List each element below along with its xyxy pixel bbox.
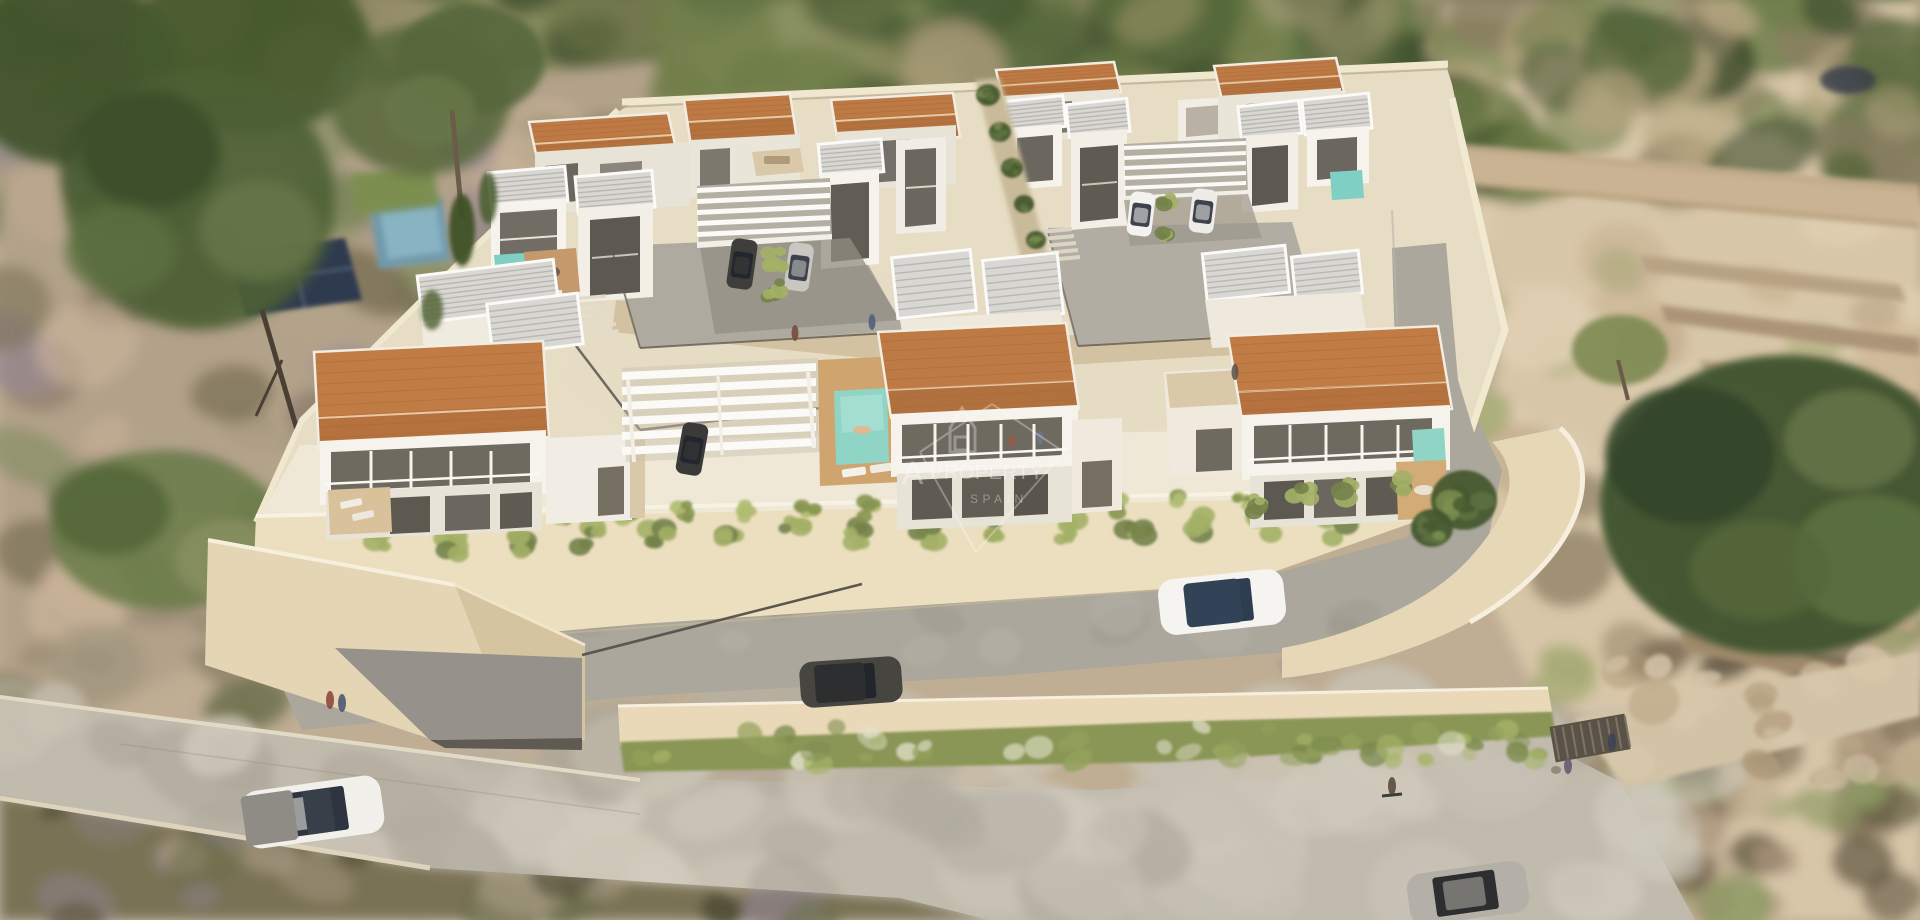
svg-text:PROPERTY: PROPERTY	[930, 462, 1044, 484]
svg-text:A: A	[902, 455, 924, 491]
svg-text:SPAIN: SPAIN	[970, 492, 1028, 506]
